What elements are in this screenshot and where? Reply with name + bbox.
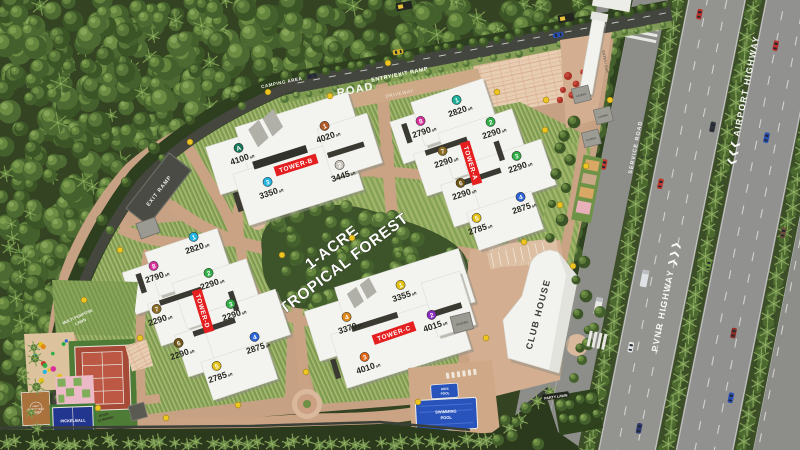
svg-text:POOL: POOL bbox=[440, 415, 452, 421]
svg-text:POOL: POOL bbox=[441, 391, 450, 396]
svg-text:PICKELBALL: PICKELBALL bbox=[60, 418, 86, 424]
